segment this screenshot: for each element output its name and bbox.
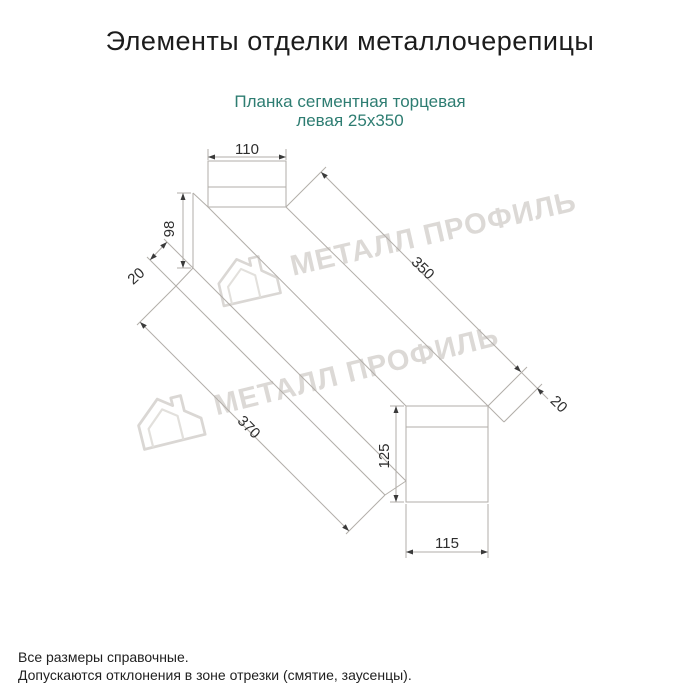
- dim-label-bottom-width: 115: [435, 535, 459, 552]
- web-right-edge: [286, 207, 488, 406]
- note-dimensions-reference: Все размеры справочные.: [18, 648, 412, 666]
- web-left-edge: [208, 207, 406, 406]
- dim-label-length-bottom: 370: [234, 412, 264, 442]
- left-end-fold-edge: [176, 268, 193, 286]
- left-end-top-edge: [193, 193, 208, 207]
- page: МЕТАЛЛ ПРОФИЛЬ МЕТАЛЛ ПРОФИЛЬ Элементы о…: [0, 0, 700, 700]
- dimension-lines: [137, 149, 548, 558]
- dimension-arrowheads: [140, 155, 544, 555]
- dim-label-left-height: 98: [161, 221, 178, 238]
- dim-label-right-fold: 20: [547, 392, 571, 416]
- profile-outline: [176, 161, 504, 502]
- technical-drawing: 110 98 20 350 20 370 125 115: [0, 0, 700, 700]
- bottom-section-rect: [406, 406, 488, 502]
- dim-label-left-fold: 20: [124, 264, 148, 288]
- footer-notes: Все размеры справочные. Допускаются откл…: [18, 648, 412, 684]
- flange-bottom-edge: [176, 286, 385, 495]
- dim-label-top-width: 110: [235, 141, 259, 158]
- top-section-rect: [208, 161, 286, 207]
- right-fold-edge: [488, 406, 504, 422]
- dim-label-length-top: 350: [408, 254, 438, 284]
- note-cutting-tolerances: Допускаются отклонения в зоне отрезки (с…: [18, 666, 412, 684]
- dim-label-right-height: 125: [376, 443, 393, 468]
